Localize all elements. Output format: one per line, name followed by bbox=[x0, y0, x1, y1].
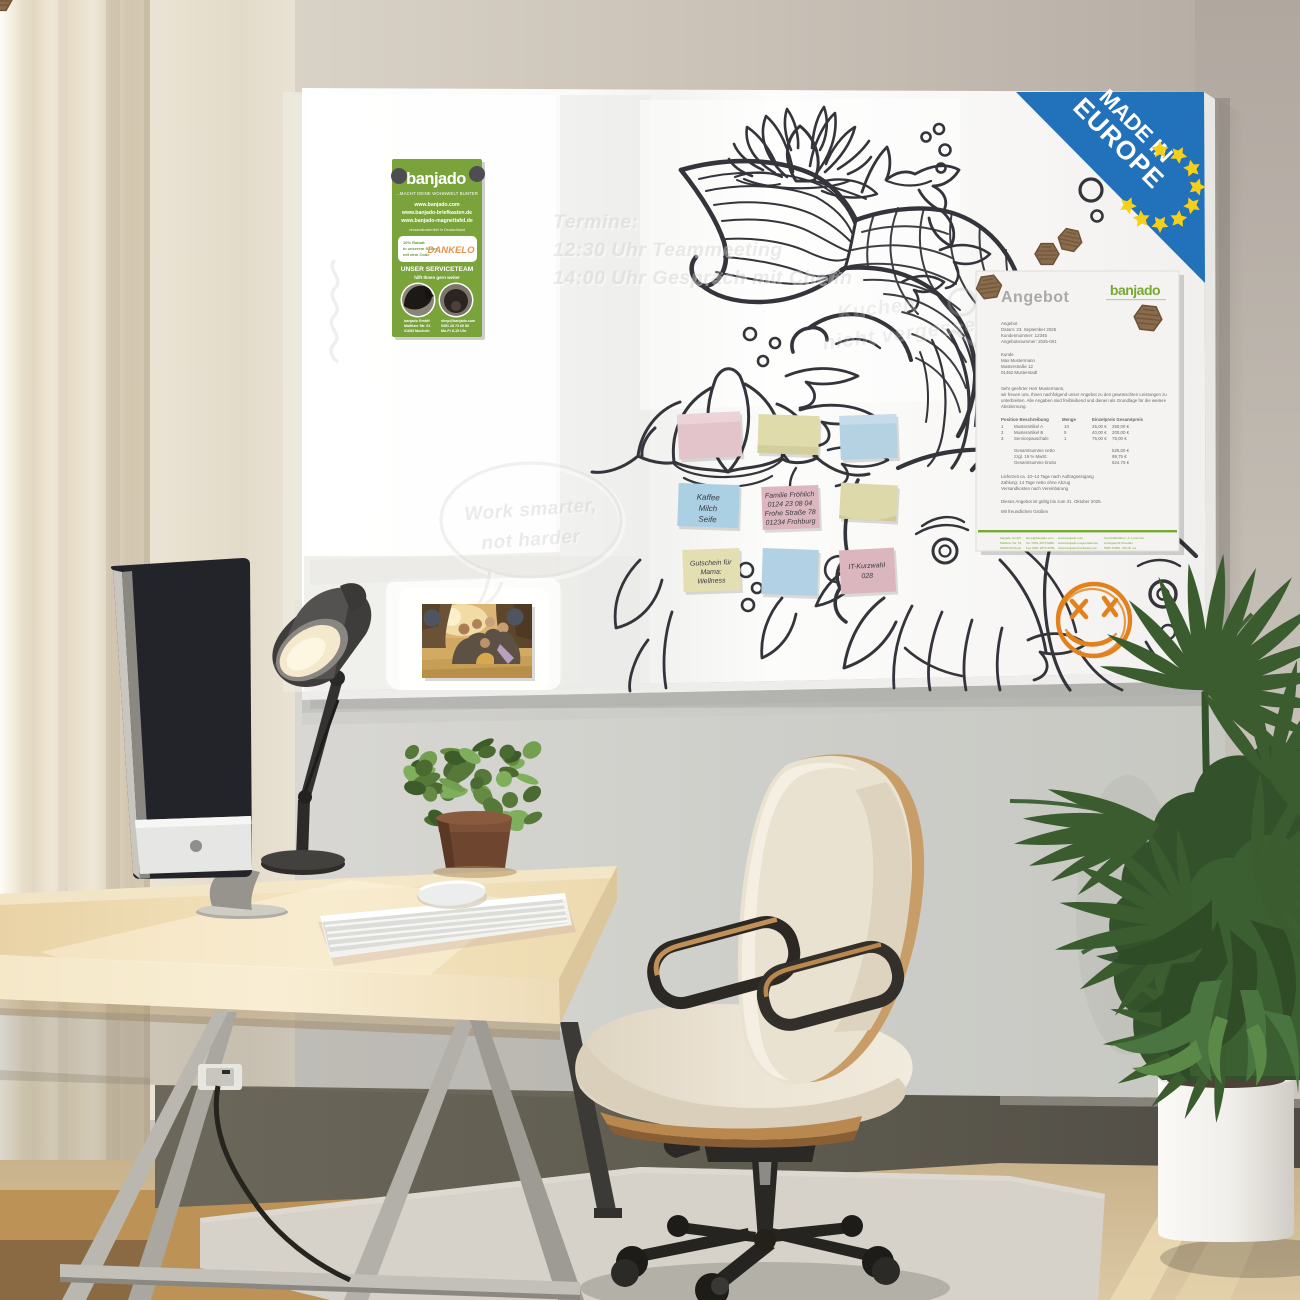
svg-text:75,00 €: 75,00 € bbox=[1112, 436, 1127, 441]
svg-text:Angebotsnummer: 2025-001: Angebotsnummer: 2025-001 bbox=[1001, 339, 1057, 344]
svg-text:10: 10 bbox=[1064, 424, 1069, 429]
svg-text:01683 Mucheln: 01683 Mucheln bbox=[404, 329, 430, 333]
svg-text:Datum: 23. September 2025: Datum: 23. September 2025 bbox=[1001, 327, 1057, 332]
svg-text:Gutschein für: Gutschein für bbox=[690, 559, 733, 567]
svg-text:Gesamtsumme netto: Gesamtsumme netto bbox=[1014, 448, 1055, 453]
svg-text:Position Beschreibung: Position Beschreibung bbox=[1001, 417, 1049, 422]
svg-text:Lieferzeit ca. 10–14 Tage nach: Lieferzeit ca. 10–14 Tage nach Auftragse… bbox=[1001, 474, 1094, 479]
svg-text:shop@banjado.com: shop@banjado.com bbox=[1026, 536, 1054, 540]
svg-text:banjado: banjado bbox=[1110, 282, 1160, 298]
svg-text:Sehr geehrter Herr Mustermann,: Sehr geehrter Herr Mustermann, bbox=[1001, 386, 1064, 391]
svg-text:14:00 Uhr Gespräch mit Chefin: 14:00 Uhr Gespräch mit Chefin bbox=[553, 267, 853, 289]
svg-text:DANKELO: DANKELO bbox=[428, 245, 476, 256]
svg-text:01683 Mucheln: 01683 Mucheln bbox=[1000, 546, 1021, 550]
svg-text:Fax 0351 2873 6089: Fax 0351 2873 6089 bbox=[1026, 546, 1055, 550]
svg-text:Kundennummer: 12345: Kundennummer: 12345 bbox=[1001, 333, 1047, 338]
svg-text:Mo-Fr 8-15 Uhr: Mo-Fr 8-15 Uhr bbox=[441, 329, 467, 333]
svg-text:Milch: Milch bbox=[698, 504, 718, 514]
svg-text:www.banjado-magnettafel.de: www.banjado-magnettafel.de bbox=[400, 218, 473, 224]
svg-text:Mama:: Mama: bbox=[700, 569, 722, 577]
svg-text:banjado: banjado bbox=[406, 170, 466, 188]
svg-text:Kunde: Kunde bbox=[1001, 352, 1014, 357]
svg-text:UNSER SERVICETEAM: UNSER SERVICETEAM bbox=[401, 266, 474, 273]
svg-text:Angebot: Angebot bbox=[1001, 321, 1018, 326]
svg-text:www.banjado.com: www.banjado.com bbox=[413, 202, 460, 208]
svg-text:Seife: Seife bbox=[698, 515, 717, 525]
svg-text:unterbreiten. Alle Angaben sin: unterbreiten. Alle Angaben sind freiblei… bbox=[1001, 398, 1167, 403]
svg-text:01462 Musterstadt: 01462 Musterstadt bbox=[1001, 370, 1038, 375]
svg-text:versandkostenfrei in Deutschla: versandkostenfrei in Deutschland bbox=[409, 228, 465, 232]
svg-text:Tel. 0351 2873 6080: Tel. 0351 2873 6080 bbox=[1026, 541, 1054, 545]
svg-text:10% Rabatt: 10% Rabatt bbox=[403, 240, 425, 245]
svg-text:250,00 €: 250,00 € bbox=[1112, 424, 1130, 429]
svg-text:99,75 €: 99,75 € bbox=[1112, 454, 1127, 459]
svg-text:Gesamtsumme brutto: Gesamtsumme brutto bbox=[1014, 460, 1057, 465]
svg-text:Versandkosten nach Vereinbarun: Versandkosten nach Vereinbarung bbox=[1001, 486, 1069, 491]
svg-text:12:30 Uhr Teammeeting: 12:30 Uhr Teammeeting bbox=[553, 239, 783, 261]
svg-text:www.banjado.com: www.banjado.com bbox=[1058, 536, 1084, 540]
svg-text:Servicepauschale: Servicepauschale bbox=[1014, 436, 1049, 441]
svg-text:www.banjado-briefkasten.de: www.banjado-briefkasten.de bbox=[1058, 546, 1097, 550]
svg-text:200,00 €: 200,00 € bbox=[1112, 430, 1130, 435]
svg-text:Mit freundlichen Grüßen: Mit freundlichen Grüßen bbox=[1001, 509, 1049, 514]
svg-text:www.banjado-briefkasten.de: www.banjado-briefkasten.de bbox=[401, 210, 472, 216]
svg-text:25,00 €: 25,00 € bbox=[1092, 424, 1107, 429]
svg-text:Maltitzer Str. 61: Maltitzer Str. 61 bbox=[404, 324, 430, 328]
svg-text:Abstimmung.: Abstimmung. bbox=[1001, 404, 1027, 409]
svg-text:banjado GmbH: banjado GmbH bbox=[404, 319, 430, 323]
svg-text:www.banjado-magnettafel.de: www.banjado-magnettafel.de bbox=[1058, 541, 1098, 545]
svg-text:Kaffee: Kaffee bbox=[697, 493, 721, 503]
svg-text:028: 028 bbox=[861, 573, 873, 581]
svg-text:Menge: Menge bbox=[1062, 417, 1076, 422]
svg-text:Dieses Angebot ist gültig bis: Dieses Angebot ist gültig bis zum 31. Ok… bbox=[1001, 499, 1102, 504]
svg-text:Musterartikel B: Musterartikel B bbox=[1014, 430, 1043, 435]
svg-text:0351 28 73 60 80: 0351 28 73 60 80 bbox=[441, 324, 469, 328]
svg-text:Angebot: Angebot bbox=[1001, 289, 1070, 306]
svg-text:Einzelpreis Gesamtpreis: Einzelpreis Gesamtpreis bbox=[1092, 417, 1144, 422]
svg-text:...MACHT DEINE WOHNWELT BUNTER: ...MACHT DEINE WOHNWELT BUNTER bbox=[396, 191, 478, 196]
svg-text:mit dem Code: mit dem Code bbox=[403, 252, 430, 257]
svg-text:Zahlung: 14 Tage netto ohne Ab: Zahlung: 14 Tage netto ohne Abzug bbox=[1001, 480, 1071, 485]
svg-text:wir freuen uns, Ihnen nachfolg: wir freuen uns, Ihnen nachfolgend unser … bbox=[1001, 392, 1167, 397]
svg-text:525,00 €: 525,00 € bbox=[1112, 448, 1130, 453]
svg-text:hilft Ihnen gern weiter: hilft Ihnen gern weiter bbox=[414, 275, 460, 280]
svg-text:Geschäftsführer: A. Lorenzen: Geschäftsführer: A. Lorenzen bbox=[1104, 536, 1145, 540]
svg-text:HRB 33256, USt-ID u.a.: HRB 33256, USt-ID u.a. bbox=[1104, 546, 1137, 550]
svg-text:Wellness: Wellness bbox=[697, 577, 726, 585]
svg-text:zzgl. 19 % MwSt.: zzgl. 19 % MwSt. bbox=[1014, 454, 1048, 459]
svg-text:624,75 €: 624,75 € bbox=[1112, 460, 1130, 465]
svg-text:Maltitzer Str. 61: Maltitzer Str. 61 bbox=[1000, 541, 1022, 545]
svg-text:Max Mustermann: Max Mustermann bbox=[1001, 358, 1035, 363]
svg-text:banjado GmbH: banjado GmbH bbox=[1000, 536, 1021, 540]
svg-text:Amtsgericht Dresden: Amtsgericht Dresden bbox=[1104, 541, 1133, 545]
svg-text:Musterstraße 12: Musterstraße 12 bbox=[1001, 364, 1034, 369]
svg-text:Termine:: Termine: bbox=[553, 211, 639, 233]
svg-text:75,00 €: 75,00 € bbox=[1092, 436, 1107, 441]
svg-text:Musterartikel A: Musterartikel A bbox=[1014, 424, 1043, 429]
svg-text:40,00 €: 40,00 € bbox=[1092, 430, 1107, 435]
svg-text:shop@banjado.com: shop@banjado.com bbox=[441, 319, 475, 323]
